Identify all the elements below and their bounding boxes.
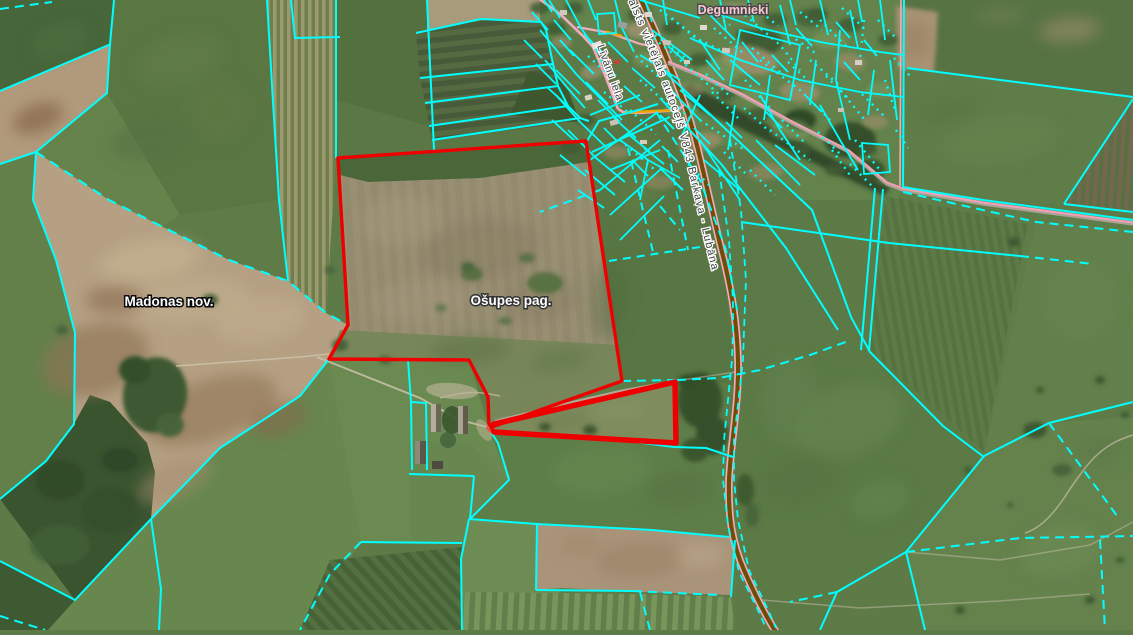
- svg-text:Ošupes pag.: Ošupes pag.: [470, 293, 551, 308]
- svg-text:Degumnieki: Degumnieki: [698, 3, 769, 17]
- svg-text:Madonas nov.: Madonas nov.: [124, 294, 213, 309]
